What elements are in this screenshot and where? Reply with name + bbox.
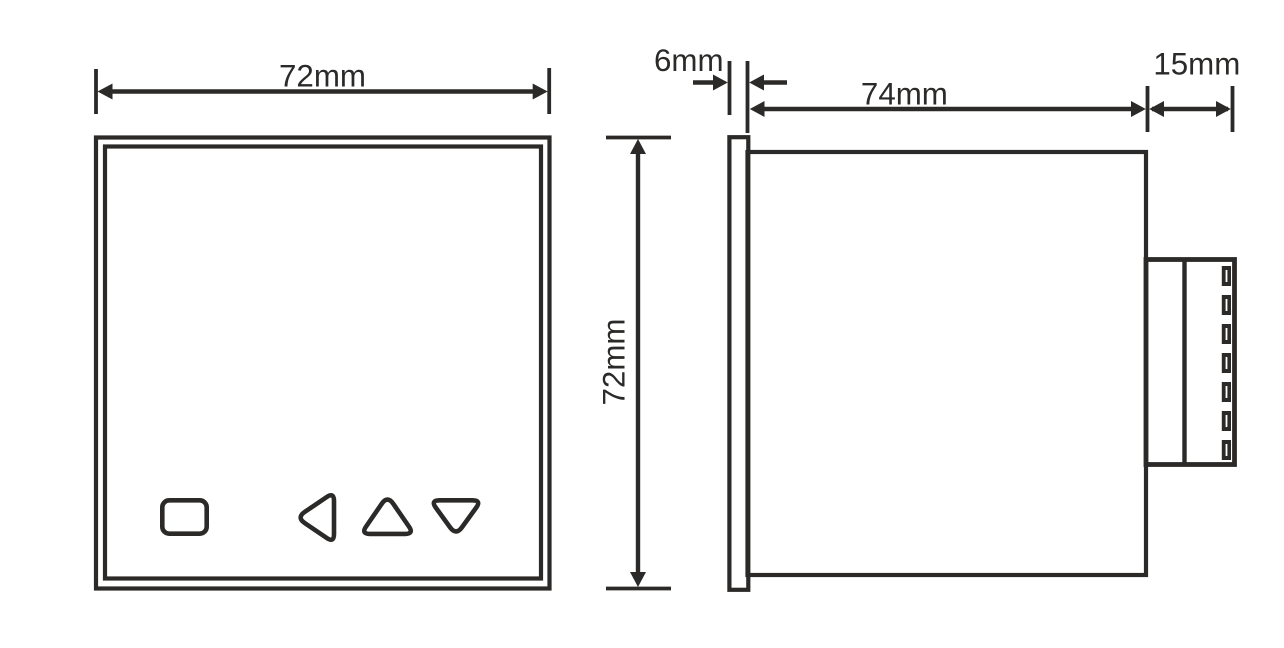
svg-text:6mm: 6mm <box>654 43 724 78</box>
svg-text:15mm: 15mm <box>1153 46 1240 81</box>
svg-text:72mm: 72mm <box>597 319 632 406</box>
svg-text:74mm: 74mm <box>861 76 948 111</box>
svg-text:72mm: 72mm <box>279 58 366 93</box>
